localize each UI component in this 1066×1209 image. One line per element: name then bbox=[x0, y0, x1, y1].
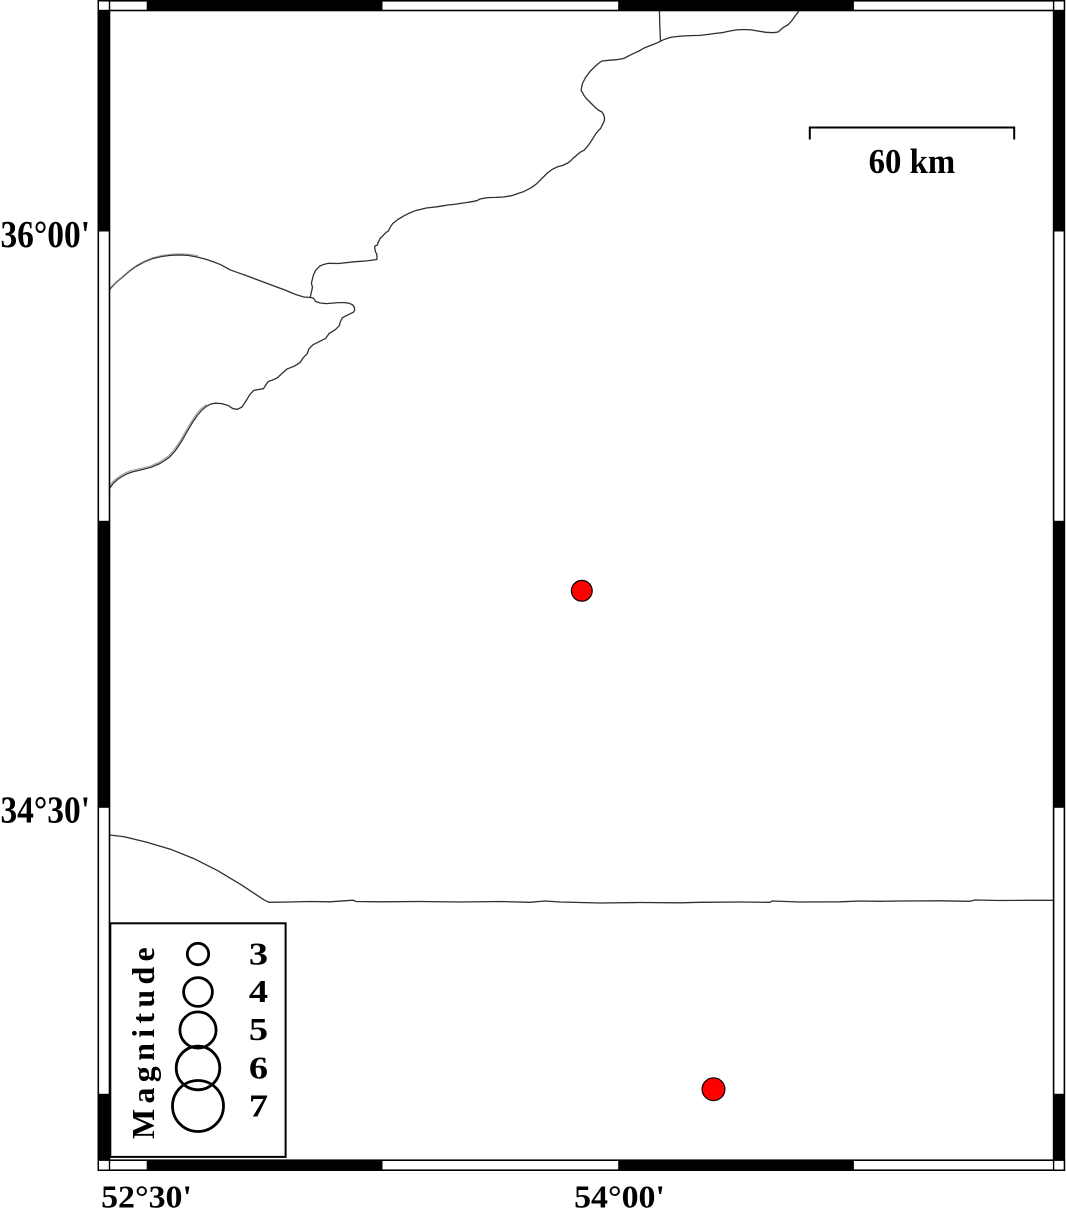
svg-text:4: 4 bbox=[249, 974, 269, 1009]
svg-text:54°00': 54°00' bbox=[574, 1180, 665, 1209]
svg-text:60 km: 60 km bbox=[869, 143, 955, 181]
svg-text:3: 3 bbox=[249, 936, 268, 971]
svg-text:Magnitude: Magnitude bbox=[125, 942, 161, 1139]
svg-text:7: 7 bbox=[249, 1089, 268, 1124]
svg-text:36°00': 36°00' bbox=[0, 213, 90, 255]
svg-text:6: 6 bbox=[249, 1051, 268, 1086]
svg-text:34°30': 34°30' bbox=[0, 788, 90, 830]
svg-text:52°30': 52°30' bbox=[101, 1180, 192, 1209]
svg-text:5: 5 bbox=[249, 1012, 268, 1047]
